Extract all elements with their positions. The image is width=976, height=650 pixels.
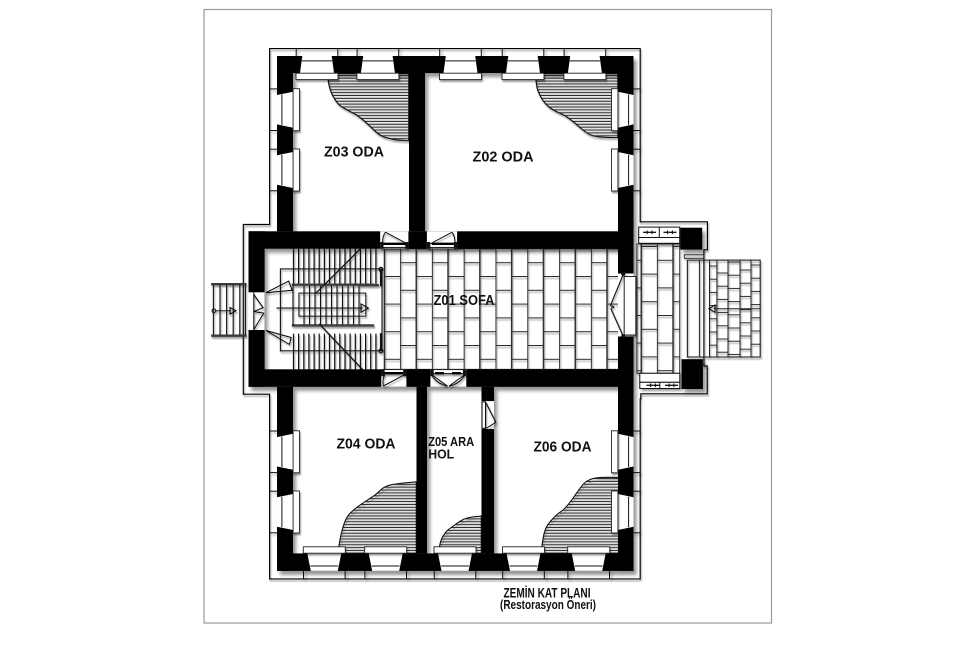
svg-text:Z02 ODA: Z02 ODA	[473, 149, 534, 166]
svg-text:(Restorasyon Öneri): (Restorasyon Öneri)	[500, 597, 596, 612]
svg-text:Z06 ODA: Z06 ODA	[534, 439, 592, 456]
svg-text:Z03 ODA: Z03 ODA	[324, 143, 384, 160]
svg-text:HOL: HOL	[428, 447, 454, 462]
svg-text:Z04 ODA: Z04 ODA	[337, 436, 396, 453]
svg-text:Z01 SOFA: Z01 SOFA	[434, 292, 495, 309]
